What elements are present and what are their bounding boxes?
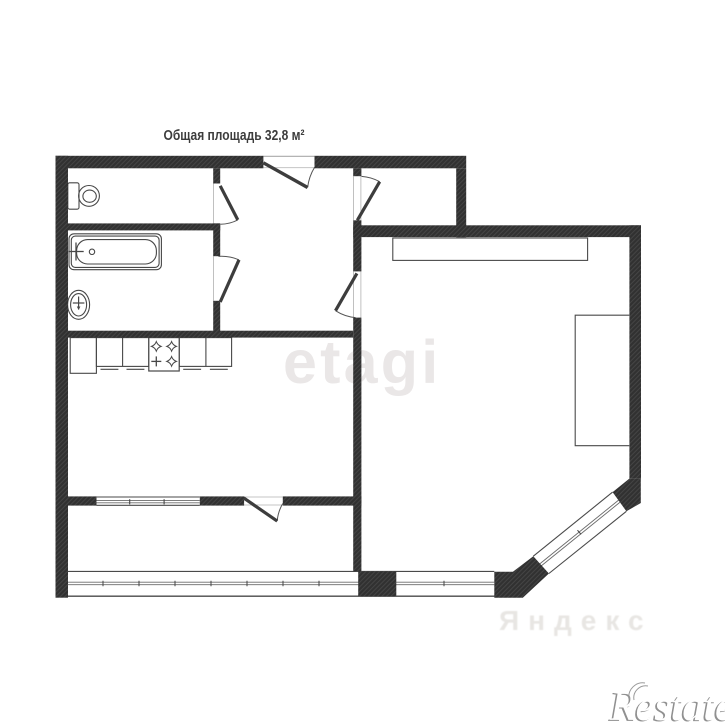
svg-text:Restate: Restate <box>609 684 725 725</box>
svg-text:etagi: etagi <box>283 328 441 396</box>
svg-text:Яндекс: Яндекс <box>499 605 653 636</box>
svg-text:Общая площадь 32,8 м²: Общая площадь 32,8 м² <box>164 127 305 144</box>
